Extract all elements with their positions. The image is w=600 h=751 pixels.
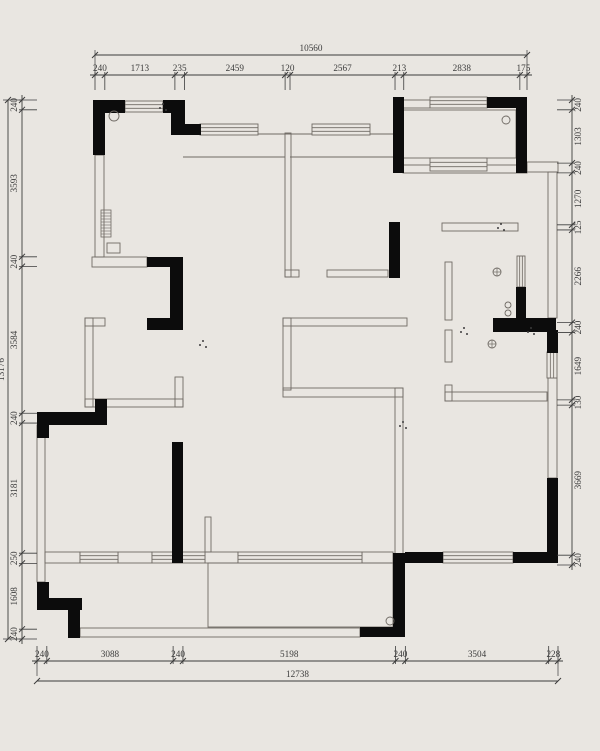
spotlight-dots [402, 421, 404, 423]
circle-symbol [505, 310, 511, 316]
dimension-label: 1713 [131, 63, 150, 73]
wall-thin [285, 270, 299, 277]
dimension-label: 2266 [573, 267, 583, 286]
radiator-symbol [101, 210, 111, 237]
dimension-label: 228 [546, 649, 560, 659]
wall-thin [92, 257, 147, 267]
window-symbol [430, 158, 487, 171]
dimension-label: 120 [281, 63, 295, 73]
dimension-label: 12738 [286, 669, 309, 679]
dimension-label: 240 [394, 649, 408, 659]
dimension-label: 1303 [573, 127, 583, 146]
dimension-label: 125 [573, 220, 583, 234]
dimension-label: 130 [573, 395, 583, 409]
dimension-label: 240 [573, 98, 583, 112]
dimension-label: 3669 [573, 471, 583, 490]
spotlight-dots [463, 327, 465, 329]
wall-thin [327, 270, 388, 277]
wall-black [163, 100, 185, 113]
window-symbol [200, 124, 258, 135]
window-symbol [547, 352, 557, 378]
wall-thin [403, 110, 516, 158]
wall-black [516, 162, 527, 172]
window-symbol [238, 552, 362, 563]
wall-black [516, 97, 527, 173]
spotlight-dots [202, 340, 204, 342]
spotlight-dots [165, 109, 167, 111]
spotlight-dots [205, 346, 207, 348]
wall-thin [85, 318, 93, 407]
dimension-label: 213 [392, 63, 406, 73]
wall-black [547, 478, 558, 563]
wall-black [516, 287, 526, 318]
wall-black [93, 100, 105, 155]
dimension-label: 240 [9, 411, 19, 425]
wall-thin [205, 552, 238, 563]
wall-thin [283, 318, 407, 326]
wall-thin [285, 133, 291, 277]
window-symbol [443, 552, 513, 563]
dimension-label: 240 [35, 649, 49, 659]
spotlight-dots [159, 107, 161, 109]
wall-black [171, 124, 201, 135]
dimension-label: 240 [573, 161, 583, 175]
wall-thin [445, 392, 547, 401]
dimension-label: 13176 [0, 358, 6, 381]
window-symbol [125, 101, 163, 112]
dimension-label: 175 [517, 63, 531, 73]
wall-thin [37, 425, 45, 582]
spotlight-dots [199, 344, 201, 346]
wall-black [389, 222, 400, 278]
spotlight-dots [497, 227, 499, 229]
wall-thin [118, 552, 152, 563]
spotlight-dots [460, 331, 462, 333]
dimension-label: 240 [9, 254, 19, 268]
dimension-label: 5198 [280, 649, 299, 659]
dimension-label: 250 [9, 551, 19, 565]
wall-thin [283, 318, 291, 390]
wall-thin [548, 378, 557, 478]
wall-thin [395, 388, 403, 562]
window-symbol [517, 256, 525, 287]
wall-black [393, 553, 405, 637]
wall-black [68, 598, 80, 638]
wall-thin [548, 172, 557, 318]
dimension-label: 2567 [333, 63, 352, 73]
dimension-label: 10560 [300, 43, 323, 53]
wall-black [493, 318, 556, 332]
dimension-label: 1270 [573, 189, 583, 208]
wall-thin [445, 330, 452, 362]
wall-black [405, 552, 443, 563]
dimension-label: 240 [573, 553, 583, 567]
wall-thin [80, 628, 360, 637]
wall-thin [283, 388, 403, 397]
wall-thin [175, 377, 183, 407]
wall-thin [445, 262, 452, 320]
wall-black [393, 97, 404, 173]
spotlight-dots [500, 223, 502, 225]
wall-thin [95, 155, 104, 257]
dimension-label: 3181 [9, 479, 19, 498]
wall-thin [527, 162, 558, 172]
dimension-label: 2838 [453, 63, 472, 73]
wall-thin [445, 385, 452, 401]
spotlight-dots [530, 327, 532, 329]
wall-thin [403, 100, 430, 108]
wall-thin [442, 223, 518, 231]
spotlight-dots [466, 333, 468, 335]
dimension-label: 3584 [9, 330, 19, 349]
window-symbol [80, 552, 118, 563]
spotlight-dots [503, 229, 505, 231]
dimension-label: 1608 [9, 587, 19, 606]
dimension-label: 3088 [101, 649, 120, 659]
wall-black [547, 330, 558, 353]
dimension-label: 240 [171, 649, 185, 659]
window-symbol [312, 124, 370, 135]
wall-black [37, 412, 105, 425]
dimension-label: 2459 [226, 63, 245, 73]
dimension-label: 1649 [573, 357, 583, 376]
spotlight-dots [162, 103, 164, 105]
dimension-label: 235 [173, 63, 187, 73]
circle-symbol [505, 302, 511, 308]
wall-black [487, 97, 516, 108]
circle-symbol [502, 116, 510, 124]
floor-plan-canvas: 2401713235245912025672132838175105602403… [0, 0, 600, 751]
window-symbol [430, 97, 487, 108]
dimension-label: 3593 [9, 174, 19, 193]
wall-thin [362, 552, 393, 563]
spotlight-dots [527, 331, 529, 333]
dimension-label: 3504 [468, 649, 487, 659]
spotlight-dots [405, 427, 407, 429]
dimension-label: 240 [573, 320, 583, 334]
floorplan-document: 2401713235245912025672132838175105602403… [0, 0, 600, 751]
wall-thin [85, 318, 105, 326]
spotlight-dots [533, 333, 535, 335]
wall-black [147, 318, 183, 330]
wall-thin [208, 563, 393, 627]
spotlight-dots [399, 425, 401, 427]
wall-black [172, 442, 183, 563]
wall-thin [205, 517, 211, 552]
wall-thin [107, 243, 120, 253]
wall-thin [45, 552, 80, 563]
